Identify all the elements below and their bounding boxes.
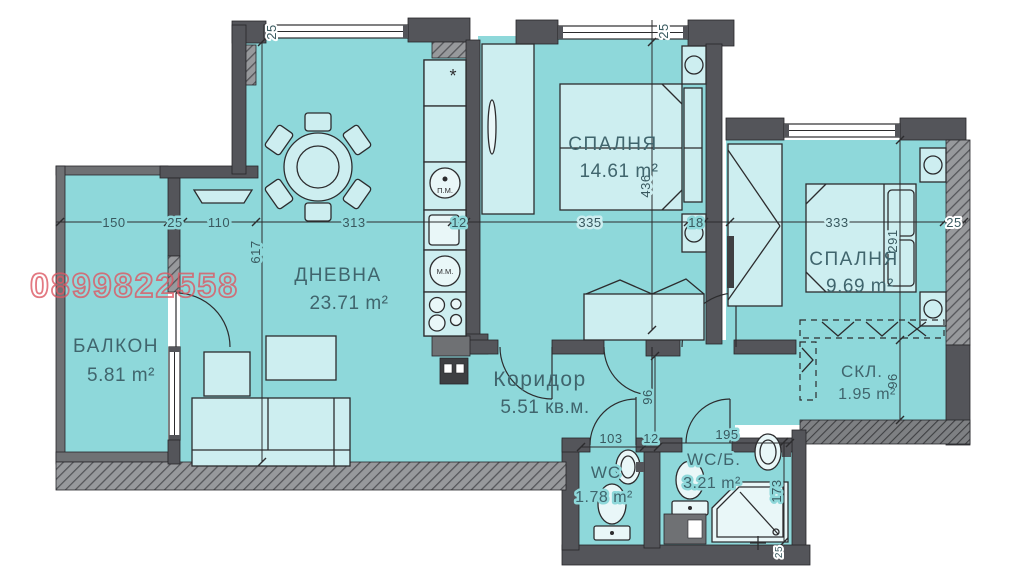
dim-195: 195 — [715, 427, 738, 442]
watermark-phone: 0899822558 — [30, 267, 239, 305]
floor-plan: * П.М. М.М. — [0, 0, 1024, 570]
living-wall-hatch — [246, 45, 256, 85]
dim-335: 335 — [578, 215, 601, 230]
floor-plan-page: * П.М. М.М. — [0, 0, 1024, 570]
kitchen-duct-hole2 — [456, 364, 464, 373]
outer-wall-right-hatch — [946, 140, 970, 345]
bedroom2-bottom-wall — [734, 340, 796, 354]
wardrobe-bedroom1-left — [482, 44, 534, 214]
wc-bathroom-divider — [644, 452, 660, 548]
balcony-area: 5.81 m² — [87, 365, 155, 386]
bathroom-cabinet — [664, 514, 706, 544]
storage-area: 1.95 m² — [838, 386, 896, 403]
bed1-headboard — [684, 88, 702, 202]
bathroom-area: 3.21 m² — [683, 475, 741, 492]
dim-617: 617 — [248, 240, 263, 263]
wc-name: WC — [591, 463, 621, 482]
tv-living — [194, 190, 252, 203]
dim-25b: 25 — [946, 215, 961, 230]
bedroom2-top-left-block — [726, 118, 784, 140]
kitchen-bedroom1-wall — [466, 40, 480, 342]
dim-wall-25-bedroom1: 25 — [656, 23, 671, 38]
dishwasher-icon: М.М. — [424, 250, 466, 292]
kitchen-top-hatch — [432, 42, 470, 58]
bedroom2-window — [784, 124, 900, 137]
dining-table — [284, 133, 352, 201]
bathroom-name: WC/Б. — [687, 450, 741, 469]
bedroom1-bedroom2-wall — [706, 44, 722, 344]
bedroom2-area: 9.69 m² — [826, 276, 894, 297]
dim-150: 150 — [102, 215, 125, 230]
nightstand-bedroom1-top — [682, 46, 706, 84]
dim-12: 12 — [451, 215, 466, 230]
corridor-name: Коридор — [493, 368, 586, 391]
living-name: ДНЕВНА — [294, 265, 381, 286]
bedroom1-top-right-block — [688, 20, 734, 46]
bedroom2-name: СПАЛНЯ — [809, 249, 898, 270]
freezer-star-icon: * — [449, 66, 456, 86]
svg-text:П.М.: П.М. — [437, 186, 453, 195]
fridge — [424, 60, 466, 106]
stove-icon — [424, 292, 466, 336]
dim-103: 103 — [599, 431, 622, 446]
corridor-bottom-wall-a — [562, 438, 590, 452]
dim-12-wc: 12 — [643, 431, 658, 446]
bedroom2-top-right-block — [900, 118, 966, 140]
living-area: 23.71 m² — [310, 293, 389, 314]
dim-18: 18 — [688, 215, 703, 230]
wc-area: 1.78 m² — [575, 489, 633, 506]
dim-313: 313 — [342, 215, 365, 230]
bedroom1-area: 14.61 m² — [580, 161, 659, 182]
living-wall-topright-block — [408, 18, 470, 42]
washing-machine-icon: П.М. — [424, 162, 466, 210]
corridor-top-wall-b — [552, 340, 604, 354]
dim-173: 173 — [769, 479, 784, 502]
bathroom-wall-right — [792, 430, 806, 552]
living-window — [264, 25, 408, 38]
wardrobe-bedroom2 — [728, 144, 782, 306]
storage-wall-bottom — [800, 420, 970, 444]
svg-text:М.М.: М.М. — [437, 267, 454, 276]
dim-wall-25-topleft: 25 — [264, 24, 279, 39]
nightstand-bedroom2-top — [920, 148, 946, 182]
balcony-wall-top — [56, 166, 168, 175]
balcony-name: БАЛКОН — [73, 336, 159, 357]
balcony-wall-left — [56, 166, 65, 464]
balcony-divider-wall-lower — [168, 440, 180, 464]
dim-110: 110 — [208, 215, 230, 230]
corridor-area: 5.51 кв.м. — [500, 397, 589, 418]
dim-25a: 25 — [167, 215, 182, 230]
bedroom1-top-left-block — [516, 20, 558, 44]
tv-bedroom2 — [727, 236, 734, 288]
balcony-wall-bottom — [56, 452, 168, 462]
dim-333: 333 — [825, 215, 848, 230]
dim-wall-25-bath: 25 — [774, 546, 785, 558]
bed2-pillow-top — [888, 190, 914, 236]
nightstand-bedroom2-bottom — [920, 292, 946, 326]
wc-block-wall-bottom — [562, 545, 810, 565]
kitchen-duct-hole1 — [444, 364, 452, 373]
dim-96-corridor: 96 — [640, 389, 655, 404]
ottoman — [204, 352, 250, 396]
kitchen-lower-cabinet — [432, 336, 470, 356]
living-wall-left-upper — [232, 25, 246, 174]
bedroom1-name: СПАЛНЯ — [568, 134, 657, 155]
storage-name: СКЛ. — [841, 362, 883, 381]
sofa — [192, 398, 350, 466]
kitchen-cabinet — [424, 106, 466, 162]
balcony-window — [169, 347, 180, 440]
coffee-table — [266, 336, 336, 380]
